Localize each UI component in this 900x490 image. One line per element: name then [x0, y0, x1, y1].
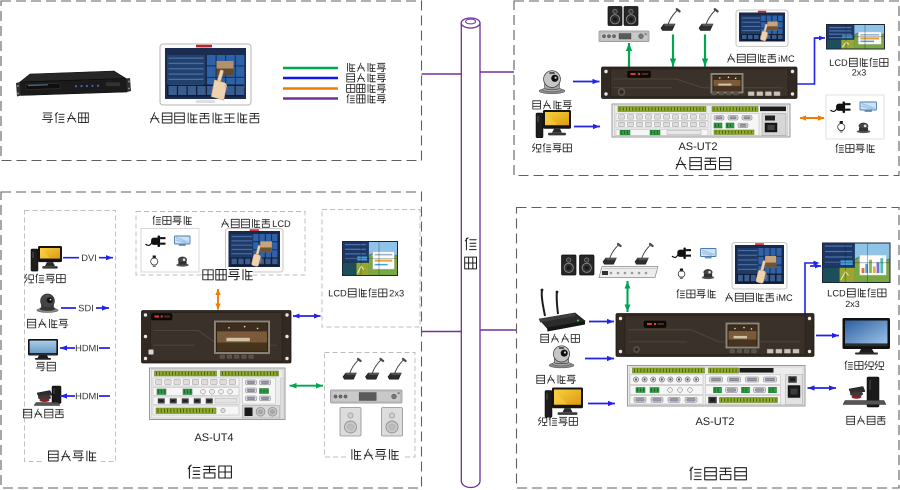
- svg-text:DVI: DVI: [81, 253, 97, 263]
- svg-text:2x3: 2x3: [389, 288, 404, 298]
- svg-text:2x3: 2x3: [852, 67, 867, 77]
- svg-text:LCD: LCD: [272, 219, 291, 229]
- svg-text:2x3: 2x3: [845, 299, 860, 309]
- svg-text:AS-UT4: AS-UT4: [194, 432, 233, 444]
- svg-text:AS-UT2: AS-UT2: [695, 416, 734, 428]
- svg-text:iMC: iMC: [778, 54, 795, 64]
- svg-text:HDMI: HDMI: [75, 343, 99, 353]
- svg-text:iMC: iMC: [776, 293, 793, 303]
- svg-text:HDMI: HDMI: [75, 391, 99, 401]
- svg-text:SDI: SDI: [78, 303, 94, 313]
- svg-text:AS-UT2: AS-UT2: [678, 141, 717, 153]
- svg-text:LCD: LCD: [827, 288, 846, 298]
- svg-text:LCD: LCD: [328, 288, 347, 298]
- svg-text:LCD: LCD: [829, 58, 848, 68]
